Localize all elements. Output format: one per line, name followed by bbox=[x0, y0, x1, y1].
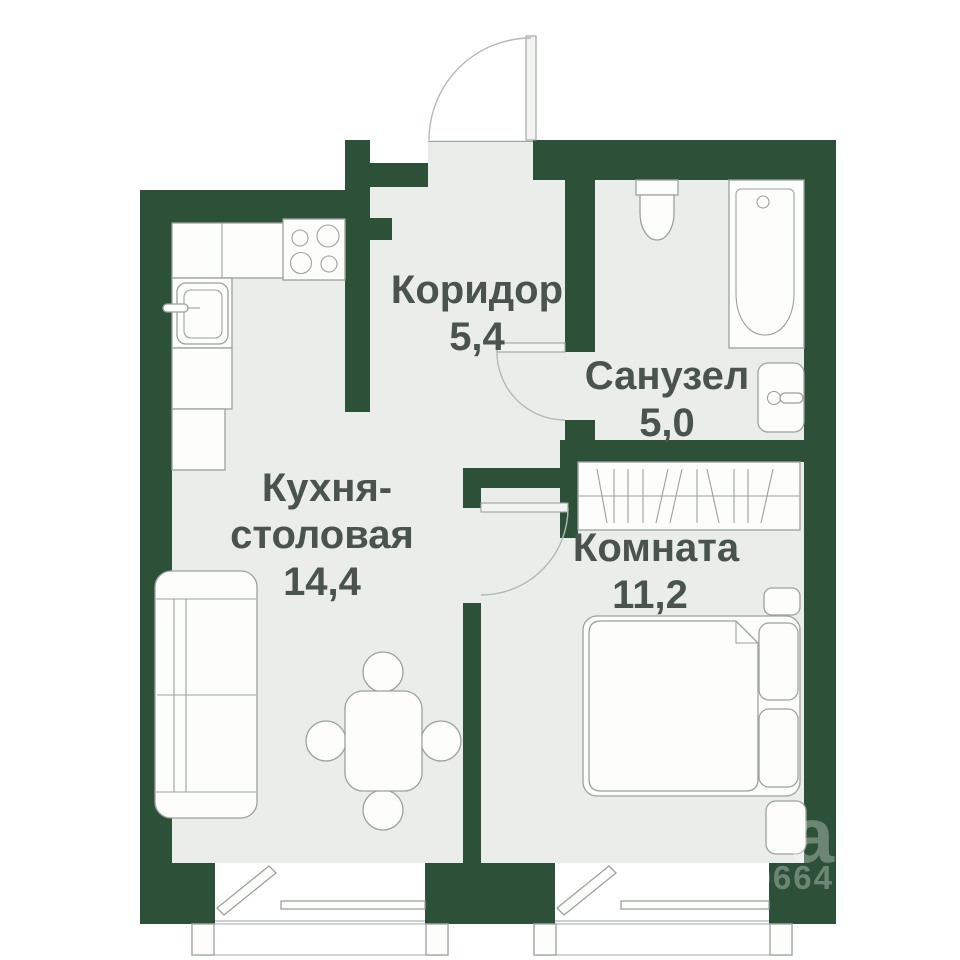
wall-corridor-room bbox=[463, 468, 578, 488]
bathtub-rim bbox=[729, 180, 804, 348]
balcony-post bbox=[426, 924, 448, 955]
balcony-rail bbox=[534, 924, 792, 955]
wall-kitchen-room bbox=[463, 603, 481, 863]
label-room: Комната bbox=[573, 526, 740, 570]
window-sash-bar bbox=[281, 901, 425, 909]
bed-pillow bbox=[759, 623, 798, 700]
label-room-area: 11,2 bbox=[612, 573, 688, 617]
balcony-post bbox=[192, 924, 214, 955]
wall-corridor-pilaster bbox=[370, 218, 392, 240]
dining-table bbox=[345, 691, 422, 791]
wall-top-tab bbox=[345, 140, 370, 164]
chair bbox=[363, 790, 403, 830]
wall-kitchen-corridor bbox=[345, 163, 370, 412]
label-kitchen-area: 14,4 bbox=[283, 560, 362, 604]
sofa bbox=[155, 571, 257, 818]
kitchen-cabinet-low bbox=[172, 409, 225, 470]
wall-room-nook-stub bbox=[560, 440, 578, 538]
bedroom-furniture bbox=[578, 462, 806, 854]
balcony-post bbox=[770, 924, 792, 955]
chair bbox=[306, 721, 346, 761]
wardrobe bbox=[578, 462, 800, 530]
wall-room-door-jamb bbox=[463, 488, 481, 508]
wall-bottom-1 bbox=[140, 863, 215, 924]
washbasin bbox=[758, 363, 804, 432]
label-corridor-area: 5,4 bbox=[449, 315, 505, 359]
window-sash-diagonal bbox=[217, 866, 276, 915]
wall-corridor-bath-upper bbox=[565, 180, 595, 352]
window-sash-diagonal bbox=[557, 866, 616, 915]
balcony-rail bbox=[192, 924, 448, 955]
floorplan-svg: Коридор 5,4 Санузел 5,0 Кухня- столовая … bbox=[0, 0, 960, 960]
toilet-tank bbox=[636, 180, 678, 195]
kitchen-cabinet-mid bbox=[172, 348, 232, 409]
entrance-door-swing-arc bbox=[429, 38, 531, 140]
window-sash-bar bbox=[621, 901, 769, 909]
label-bathroom-area: 5,0 bbox=[639, 401, 695, 445]
chair bbox=[363, 652, 403, 692]
window-kitchen bbox=[192, 866, 448, 955]
label-bathroom: Санузел bbox=[585, 354, 750, 398]
bed-pillow bbox=[759, 709, 798, 787]
chair bbox=[421, 721, 461, 761]
entrance-door bbox=[429, 36, 536, 140]
floorplan-canvas: Коридор 5,4 Санузел 5,0 Кухня- столовая … bbox=[0, 0, 960, 960]
label-kitchen-line2: столовая bbox=[230, 513, 414, 557]
nightstand-top bbox=[764, 588, 800, 615]
watermark-number: 9664 bbox=[753, 859, 834, 896]
toilet-bowl bbox=[640, 195, 674, 240]
kitchen-faucet bbox=[163, 304, 188, 312]
entrance-door-leaf bbox=[526, 36, 536, 140]
balcony-post bbox=[534, 924, 556, 955]
wall-bottom-2 bbox=[425, 863, 555, 924]
room-door-leaf bbox=[481, 503, 568, 512]
bathtub bbox=[729, 180, 804, 348]
label-kitchen-line1: Кухня- bbox=[262, 466, 392, 510]
label-corridor: Коридор bbox=[391, 268, 563, 312]
wall-top-right bbox=[533, 140, 836, 180]
washbasin-faucet bbox=[780, 393, 803, 403]
bed bbox=[583, 616, 800, 796]
entrance-threshold-floor bbox=[428, 140, 533, 187]
bathroom-door-leaf bbox=[497, 343, 565, 352]
bed-blanket bbox=[589, 621, 758, 791]
